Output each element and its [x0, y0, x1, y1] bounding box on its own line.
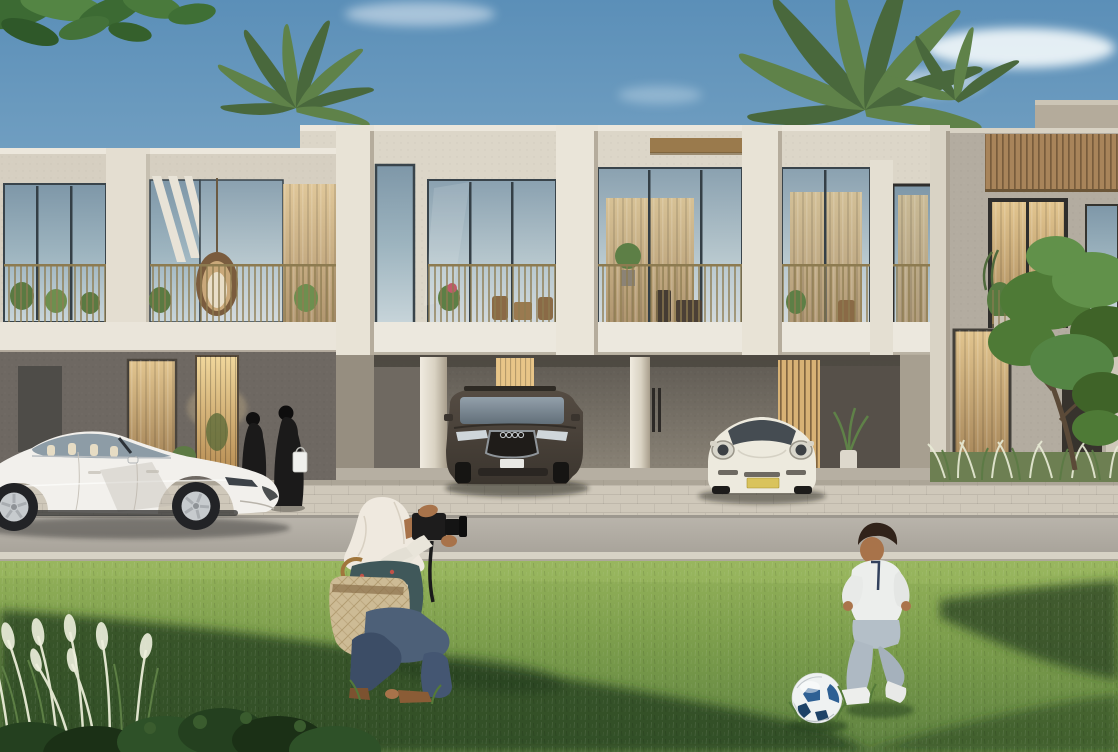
door-handle	[652, 388, 655, 432]
suv-roof-rails	[464, 386, 556, 391]
balcony-railing	[428, 266, 556, 322]
carport-column	[630, 357, 650, 480]
headlight-lens	[796, 445, 807, 456]
dark-wall	[820, 366, 900, 480]
townhouse-center	[300, 125, 950, 480]
cloud	[345, 2, 495, 26]
suv-license-plate	[500, 459, 524, 468]
boy-hand	[901, 601, 911, 611]
headlight-lens	[718, 445, 729, 456]
balcony-railing	[4, 266, 106, 322]
pier	[870, 160, 893, 355]
slat-shadow	[985, 189, 1118, 192]
suv-windshield	[460, 397, 564, 424]
door-plant-silhouette	[206, 413, 228, 451]
carport-column	[420, 357, 447, 480]
coupe-wheel-left	[712, 486, 730, 494]
coupe-license-plate	[747, 478, 779, 488]
parapet	[1035, 100, 1118, 105]
sedan-front-wheel	[172, 482, 220, 530]
coupe-mirror-right	[807, 441, 814, 446]
camera-lens	[445, 519, 460, 535]
coupe-intake	[718, 470, 738, 475]
carport-floor	[336, 468, 930, 480]
carport	[336, 355, 930, 480]
render-stage	[0, 0, 1118, 752]
heel-skin	[385, 689, 399, 699]
pier-shade	[594, 131, 598, 355]
sedan-door-handle	[88, 471, 101, 474]
railing-toprail	[150, 264, 336, 267]
return-wall	[336, 355, 374, 480]
curtain-folds	[128, 360, 176, 454]
pier	[106, 148, 150, 352]
coupe-mirror-left	[710, 441, 717, 446]
ball-highlight	[800, 681, 820, 693]
parapet	[300, 125, 950, 131]
parapet	[950, 128, 1118, 133]
sandal	[398, 690, 432, 703]
football	[792, 673, 842, 723]
door-handle	[658, 388, 661, 432]
balcony-railing	[150, 266, 336, 322]
cloud	[925, 28, 1115, 68]
railing-toprail	[428, 264, 556, 267]
camera-body	[412, 513, 446, 540]
scene-canvas	[0, 0, 1118, 752]
suv-wheel-right	[553, 462, 569, 483]
pier-shade	[778, 131, 782, 355]
railing-toprail	[782, 264, 930, 267]
suv-mirror-right	[571, 414, 580, 421]
sedan-mirror	[128, 457, 138, 463]
suv-mirror-left	[444, 414, 453, 421]
tall-window	[376, 165, 414, 325]
pier	[336, 125, 374, 355]
pier	[556, 125, 598, 355]
railing-toprail	[598, 264, 742, 267]
balcony-bay-2	[598, 168, 742, 325]
pier-shade	[370, 131, 374, 355]
balcony-railing	[782, 266, 930, 322]
light-wall	[900, 355, 930, 480]
suv-bumper	[478, 468, 548, 476]
hand-under-lens	[441, 535, 457, 547]
boy-face	[860, 537, 884, 563]
suv-wheel-left	[455, 462, 471, 483]
pier-shade	[946, 131, 950, 480]
dark-suv	[444, 386, 589, 497]
coupe-intake	[744, 472, 780, 477]
cloud	[618, 86, 702, 104]
bronze-trim-shadow	[650, 152, 742, 155]
boy-shadow	[846, 702, 914, 718]
shopping-bag	[293, 452, 307, 472]
parapet	[0, 148, 336, 154]
railing-toprail	[4, 264, 106, 267]
dark-wall	[374, 367, 420, 480]
bronze-trim	[650, 138, 742, 153]
balcony-bay-1	[424, 180, 556, 325]
boy-hand	[843, 601, 853, 611]
coupe-intake	[786, 470, 806, 475]
pier	[742, 125, 782, 355]
balcony-railing	[598, 266, 742, 322]
slat-gaps	[985, 134, 1118, 192]
floor-slab	[300, 322, 950, 354]
coupe-wheel-right	[794, 486, 812, 494]
floor-slab	[0, 322, 336, 352]
balcony-bay-3	[782, 168, 933, 330]
lens-hood	[459, 516, 467, 537]
